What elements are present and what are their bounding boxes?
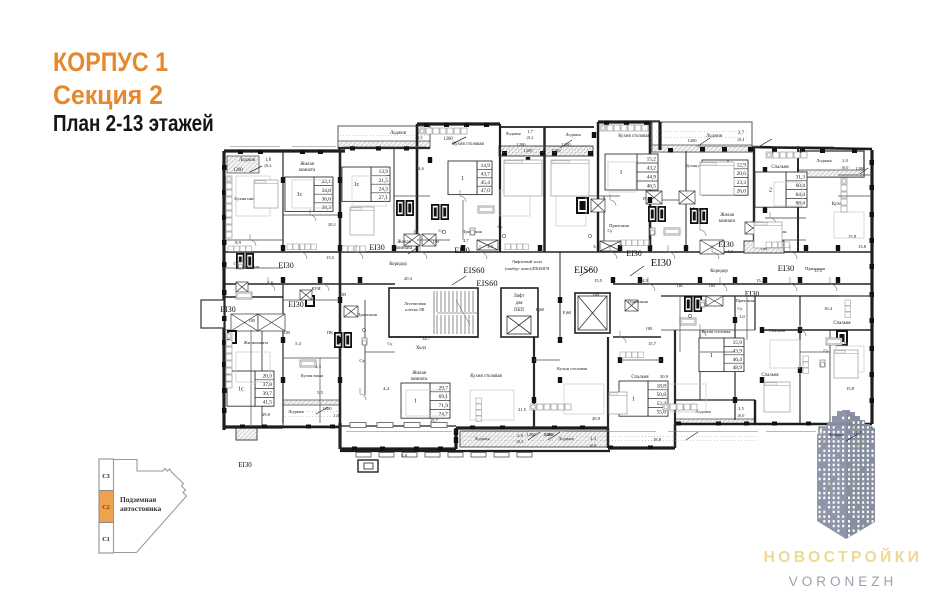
svg-text:Лоджия: Лоджия xyxy=(288,409,304,414)
svg-text:Кухня столовая: Кухня столовая xyxy=(452,142,484,147)
svg-text:Прихожая: Прихожая xyxy=(736,298,755,303)
svg-text:Су: Су xyxy=(497,224,503,229)
svg-text:Коридор: Коридор xyxy=(389,262,407,267)
svg-text:клетка ЛК: клетка ЛК xyxy=(405,307,424,312)
svg-text:46,4: 46,4 xyxy=(733,357,743,363)
svg-text:71,9: 71,9 xyxy=(439,403,449,409)
svg-text:31,3: 31,3 xyxy=(796,174,806,180)
svg-text:Лоджия: Лоджия xyxy=(565,132,581,137)
svg-text:Коридор: Коридор xyxy=(710,269,728,274)
svg-text:14,7: 14,7 xyxy=(422,336,431,342)
svg-text:Е)60: Е)60 xyxy=(563,310,572,315)
svg-text:15,5: 15,5 xyxy=(814,268,823,274)
svg-text:44,9: 44,9 xyxy=(647,174,657,180)
svg-text:ОВ: ОВ xyxy=(593,292,599,297)
svg-text:46,5: 46,5 xyxy=(647,183,657,189)
svg-text:Прихожая: Прихожая xyxy=(628,299,649,304)
svg-text:EI30: EI30 xyxy=(220,305,236,314)
svg-text:Жилая: Жилая xyxy=(300,162,314,167)
svg-text:комната: комната xyxy=(299,168,316,173)
svg-text:Лоджия: Лоджия xyxy=(695,409,711,414)
svg-text:21,5: 21,5 xyxy=(379,178,389,184)
svg-text:Лоджия: Лоджия xyxy=(706,134,723,139)
svg-text:14,9: 14,9 xyxy=(640,278,649,284)
svg-text:С2: С2 xyxy=(102,504,110,511)
svg-text:24,3: 24,3 xyxy=(379,186,389,192)
svg-text:ПК: ПК xyxy=(677,283,683,288)
svg-text:Лифт: Лифт xyxy=(513,294,525,299)
svg-text:1с: 1с xyxy=(297,192,303,198)
svg-text:Жилкомната: Жилкомната xyxy=(244,340,268,345)
svg-text:50,8: 50,8 xyxy=(657,392,667,398)
svg-text:EI30: EI30 xyxy=(454,246,470,255)
svg-text:Су: Су xyxy=(387,341,393,346)
svg-text:(0,8: (0,8 xyxy=(590,443,597,449)
svg-text:20,6: 20,6 xyxy=(737,171,747,177)
svg-text:36,6: 36,6 xyxy=(322,196,332,202)
svg-text:13,8: 13,8 xyxy=(858,244,867,250)
svg-text:18,8: 18,8 xyxy=(653,437,662,443)
svg-text:18,8: 18,8 xyxy=(657,383,667,389)
svg-text:EI30: EI30 xyxy=(278,261,294,270)
svg-text:20,1: 20,1 xyxy=(328,222,337,228)
svg-text:Кухня столовая: Кухня столовая xyxy=(557,366,588,371)
svg-text:ОВ: ОВ xyxy=(249,318,255,323)
svg-text:43,9: 43,9 xyxy=(733,348,743,354)
svg-text:ПБП: ПБП xyxy=(514,308,524,313)
svg-text:1с: 1с xyxy=(354,182,360,188)
svg-text:VORONEZH: VORONEZH xyxy=(789,574,898,589)
svg-text:13,5: 13,5 xyxy=(326,255,335,261)
svg-text:Холл: Холл xyxy=(416,346,427,351)
svg-text:EI30: EI30 xyxy=(651,258,671,269)
svg-text:Кухня столовая: Кухня столовая xyxy=(470,374,502,379)
svg-text:55,6: 55,6 xyxy=(657,410,667,416)
svg-text:69,1: 69,1 xyxy=(439,394,449,400)
svg-text:3,0: 3,0 xyxy=(739,314,745,320)
svg-text:С3: С3 xyxy=(102,473,110,480)
svg-text:14,9: 14,9 xyxy=(481,163,491,169)
svg-text:(тамбур- шлюз)ПБЗМГН: (тамбур- шлюз)ПБЗМГН xyxy=(505,266,550,271)
svg-text:Спальня: Спальня xyxy=(771,165,789,170)
svg-text:29,7: 29,7 xyxy=(439,385,449,391)
svg-text:(0,2: (0,2 xyxy=(527,135,534,141)
svg-text:74,7: 74,7 xyxy=(439,412,449,418)
svg-text:20,9: 20,9 xyxy=(660,374,669,380)
svg-text:5,4: 5,4 xyxy=(295,341,301,347)
svg-text:Лестничная: Лестничная xyxy=(404,301,426,306)
svg-text:15,5: 15,5 xyxy=(594,278,603,284)
svg-text:Прихожая: Прихожая xyxy=(357,312,378,317)
svg-text:1200: 1200 xyxy=(855,166,865,171)
svg-text:13,9: 13,9 xyxy=(379,169,389,175)
svg-text:4,6: 4,6 xyxy=(418,166,424,172)
svg-text:39,7: 39,7 xyxy=(263,391,273,397)
svg-text:12,9: 12,9 xyxy=(737,162,747,168)
svg-text:Жилая: Жилая xyxy=(720,213,734,218)
svg-text:Лоджия: Лоджия xyxy=(558,436,574,441)
svg-text:4,4: 4,4 xyxy=(383,386,389,392)
svg-text:20,0: 20,0 xyxy=(263,373,273,379)
svg-text:1: 1 xyxy=(414,399,417,405)
svg-text:41,5: 41,5 xyxy=(263,400,273,406)
svg-text:15,2: 15,2 xyxy=(756,278,765,284)
svg-text:1: 1 xyxy=(632,397,635,403)
svg-text:Су: Су xyxy=(359,358,365,363)
svg-text:Лифтовый холл: Лифтовый холл xyxy=(512,259,543,264)
svg-text:Кухня столовая: Кухня столовая xyxy=(618,134,650,139)
svg-text:15,8: 15,8 xyxy=(846,386,855,392)
svg-text:2: 2 xyxy=(769,188,772,194)
svg-text:1: 1 xyxy=(461,176,464,182)
svg-text:Лоджия: Лоджия xyxy=(816,158,832,163)
svg-text:КУИ: КУИ xyxy=(311,286,321,291)
svg-text:20,9: 20,9 xyxy=(592,416,601,422)
svg-text:26,0: 26,0 xyxy=(737,189,747,195)
svg-text:1: 1 xyxy=(620,170,623,176)
svg-text:15,2: 15,2 xyxy=(647,156,657,162)
svg-text:1200: 1200 xyxy=(543,432,553,437)
svg-text:23,3: 23,3 xyxy=(737,180,747,186)
svg-text:комната: комната xyxy=(411,377,428,382)
svg-text:Лоджия: Лоджия xyxy=(474,436,490,441)
svg-text:2,8: 2,8 xyxy=(401,453,407,459)
svg-text:EIS60: EIS60 xyxy=(463,265,484,275)
svg-text:ОВ: ОВ xyxy=(646,326,652,331)
svg-text:EIS60: EIS60 xyxy=(574,266,598,276)
svg-text:15,9: 15,9 xyxy=(733,340,743,346)
svg-text:Лоджия: Лоджия xyxy=(828,432,844,437)
svg-text:15,8: 15,8 xyxy=(848,234,857,240)
svg-text:4,7: 4,7 xyxy=(463,238,469,244)
svg-text:Кухня столовая: Кухня столовая xyxy=(702,329,731,334)
svg-text:1с: 1с xyxy=(238,387,244,393)
svg-text:ОВ: ОВ xyxy=(284,330,290,335)
svg-text:EI30: EI30 xyxy=(778,263,795,273)
svg-text:47,0: 47,0 xyxy=(481,188,491,194)
svg-text:43,7: 43,7 xyxy=(481,171,491,177)
svg-text:EI30: EI30 xyxy=(718,240,734,249)
svg-text:1200: 1200 xyxy=(552,148,562,153)
svg-text:1200: 1200 xyxy=(853,430,863,435)
svg-text:Спальня: Спальня xyxy=(769,328,785,333)
svg-text:1: 1 xyxy=(710,353,713,359)
svg-text:43,2: 43,2 xyxy=(647,165,657,171)
svg-text:1200: 1200 xyxy=(516,142,526,147)
svg-text:комната: комната xyxy=(719,219,736,224)
svg-text:для: для xyxy=(515,301,523,306)
svg-text:Жилая: Жилая xyxy=(412,371,426,376)
svg-text:Лоджия: Лоджия xyxy=(390,131,407,136)
svg-text:4,7: 4,7 xyxy=(727,249,733,255)
svg-text:1200: 1200 xyxy=(233,168,243,173)
svg-text:НОВОСТРОЙКИ: НОВОСТРОЙКИ xyxy=(764,548,923,566)
svg-text:1200: 1200 xyxy=(526,432,536,437)
svg-text:21,5: 21,5 xyxy=(518,407,527,413)
svg-text:Спальня: Спальня xyxy=(631,375,649,380)
svg-text:Лоджия: Лоджия xyxy=(505,131,521,136)
svg-text:8,9: 8,9 xyxy=(235,240,241,246)
svg-text:1200: 1200 xyxy=(524,148,534,153)
svg-text:Су: Су xyxy=(607,228,613,233)
svg-text:автостоянка: автостоянка xyxy=(120,504,162,513)
svg-text:ПК: ПК xyxy=(327,330,333,335)
svg-text:ОВ: ОВ xyxy=(340,292,346,297)
svg-text:(0,2: (0,2 xyxy=(265,163,272,169)
svg-text:60,4: 60,4 xyxy=(796,183,806,189)
svg-text:34,8: 34,8 xyxy=(322,188,332,194)
svg-text:Подземная: Подземная xyxy=(120,495,156,504)
svg-text:ОВ: ОВ xyxy=(709,283,715,288)
svg-text:64,4: 64,4 xyxy=(796,192,806,198)
svg-text:37,8: 37,8 xyxy=(263,382,273,388)
svg-text:1200: 1200 xyxy=(322,406,332,411)
svg-text:1200: 1200 xyxy=(687,138,697,143)
svg-text:27,1: 27,1 xyxy=(379,195,389,201)
svg-text:48,9: 48,9 xyxy=(733,365,743,371)
svg-text:С1: С1 xyxy=(102,536,110,543)
svg-text:Лоджия: Лоджия xyxy=(239,158,256,163)
svg-text:Жилая: Жилая xyxy=(397,240,411,245)
svg-text:комната: комната xyxy=(396,246,413,251)
svg-text:EI30: EI30 xyxy=(369,243,385,252)
svg-text:Су: Су xyxy=(737,306,743,311)
svg-text:45,4: 45,4 xyxy=(481,180,491,186)
svg-text:Спальня: Спальня xyxy=(761,373,779,378)
svg-text:Спальня: Спальня xyxy=(833,321,851,326)
svg-text:EI30: EI30 xyxy=(238,461,252,469)
svg-text:Е)60: Е)60 xyxy=(536,307,545,312)
svg-text:EI30: EI30 xyxy=(288,300,304,309)
svg-text:EIS60: EIS60 xyxy=(476,278,497,288)
svg-text:29,0: 29,0 xyxy=(262,412,271,418)
svg-text:20,3: 20,3 xyxy=(404,276,413,282)
svg-text:EI30: EI30 xyxy=(626,249,642,258)
svg-text:10,4: 10,4 xyxy=(824,306,833,312)
svg-text:15,7: 15,7 xyxy=(648,341,657,347)
